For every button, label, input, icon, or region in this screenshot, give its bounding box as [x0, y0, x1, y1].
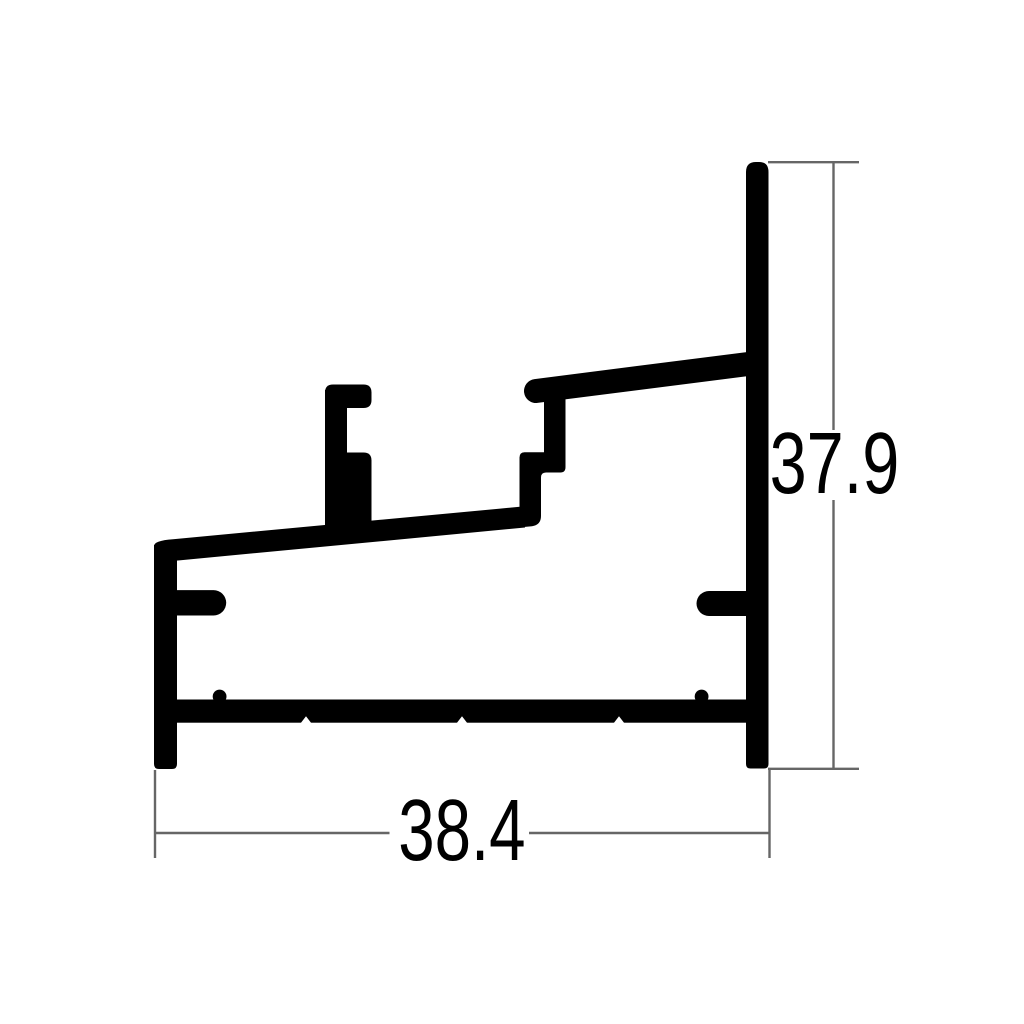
svg-text:38.4: 38.4	[398, 782, 525, 879]
svg-text:37.9: 37.9	[770, 416, 900, 513]
